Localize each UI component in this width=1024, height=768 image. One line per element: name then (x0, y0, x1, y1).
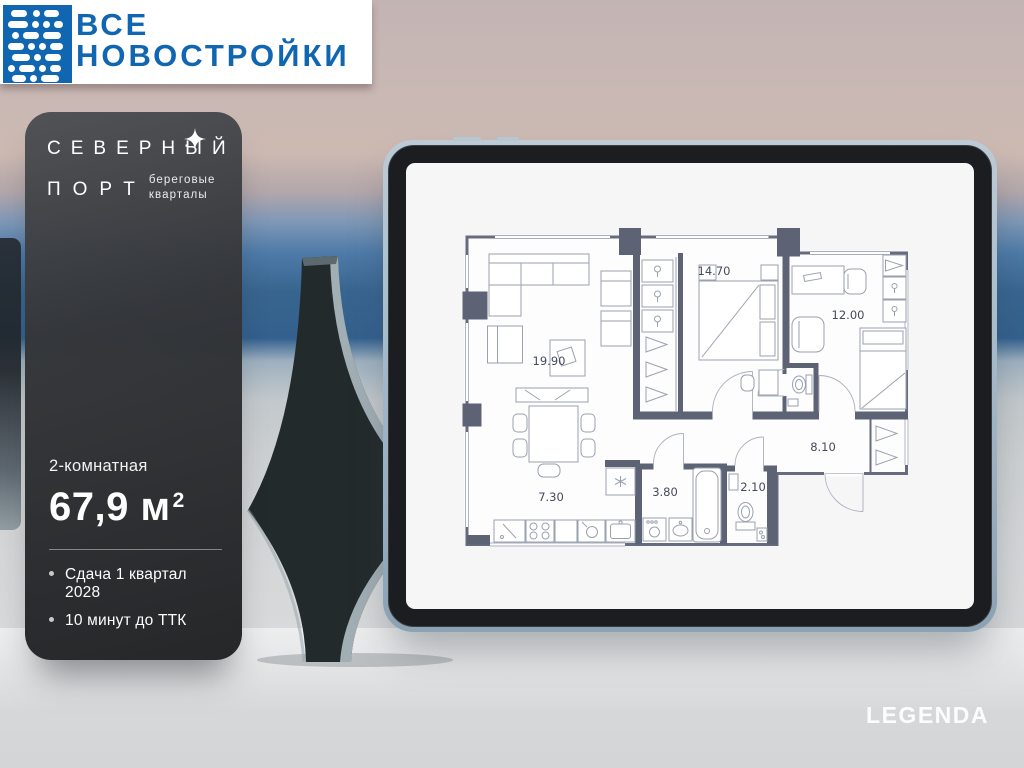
room-label-bedroom2: 12.00 (832, 308, 865, 322)
sparkle-icon (184, 128, 206, 150)
feature-text-1: Сдача 1 квартал 2028 (65, 566, 222, 602)
brand-logo-icon (3, 5, 72, 83)
hero-scene: 19.90 14.70 12.00 8.10 7.30 3.80 2.10 (0, 0, 1024, 768)
rooms-label: 2-комнатная (49, 457, 222, 476)
room-label-bathroom: 3.80 (652, 485, 678, 499)
brand-title: ВСЕ НОВОСТРОЙКИ (76, 9, 350, 71)
area-superscript: 2 (173, 489, 185, 513)
project-name-line2: ПОРТ (47, 179, 147, 201)
tablet-power-button (497, 137, 519, 141)
tablet-bezel: 19.90 14.70 12.00 8.10 7.30 3.80 2.10 (388, 145, 992, 627)
developer-logo: LEGENDA (866, 702, 989, 729)
tablet-screen: 19.90 14.70 12.00 8.10 7.30 3.80 2.10 (406, 163, 974, 609)
project-card: СЕВЕРНЫЙ ПОРТ береговые кварталы 2-комна… (25, 112, 242, 660)
room-label-living: 19.90 (533, 354, 566, 368)
area-value: 67,9 м2 (49, 485, 222, 530)
floor-plan: 19.90 14.70 12.00 8.10 7.30 3.80 2.10 (460, 225, 930, 560)
room-label-bedroom: 14.70 (698, 264, 731, 278)
feature-bullet-2: 10 минут до ТТК (49, 612, 222, 630)
feature-text-2: 10 минут до ТТК (65, 612, 187, 630)
project-subtitle-line1: береговые (149, 173, 216, 188)
brand-title-line2: НОВОСТРОЙКИ (76, 40, 350, 71)
apartment-info: 2-комнатная 67,9 м2 Сдача 1 квартал 2028… (49, 457, 222, 630)
left-sculpture-edge (0, 238, 21, 530)
card-divider (49, 549, 222, 550)
room-label-kitchen: 7.30 (538, 490, 564, 504)
tablet-volume-button (453, 137, 481, 141)
room-label-hallway: 8.10 (810, 440, 836, 454)
bullet-dot-icon (49, 617, 54, 622)
feature-bullet-1: Сдача 1 квартал 2028 (49, 566, 222, 602)
brand-bar: ВСЕ НОВОСТРОЙКИ (0, 0, 372, 84)
project-logo: СЕВЕРНЫЙ ПОРТ береговые кварталы (47, 138, 222, 201)
area-number: 67,9 м (49, 485, 171, 529)
project-subtitle-line2: кварталы (149, 188, 216, 203)
room-label-wc: 2.10 (740, 480, 766, 494)
tablet-device: 19.90 14.70 12.00 8.10 7.30 3.80 2.10 (383, 140, 997, 632)
brand-title-line1: ВСЕ (76, 9, 350, 40)
bullet-dot-icon (49, 571, 54, 576)
project-subtitle: береговые кварталы (149, 173, 216, 203)
